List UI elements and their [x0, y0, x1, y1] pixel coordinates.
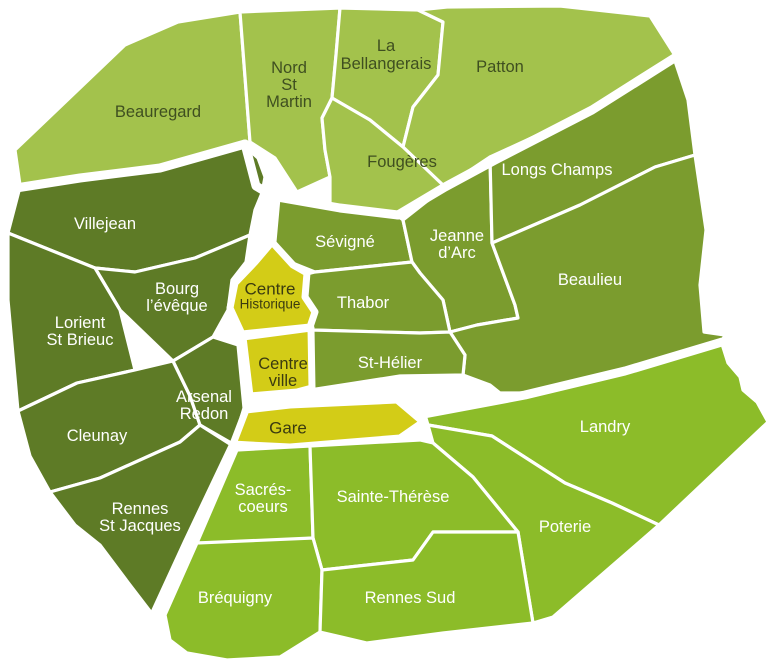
district-centre-ville[interactable]: [243, 328, 312, 396]
rennes-districts-map: BeauregardNordStMartinLaBellangeraisPatt…: [0, 0, 784, 667]
district-brequigny[interactable]: [165, 538, 322, 660]
district-shapes-layer: [8, 6, 768, 660]
districts-map-canvas: BeauregardNordStMartinLaBellangeraisPatt…: [0, 0, 784, 667]
district-st-helier[interactable]: [310, 330, 465, 390]
